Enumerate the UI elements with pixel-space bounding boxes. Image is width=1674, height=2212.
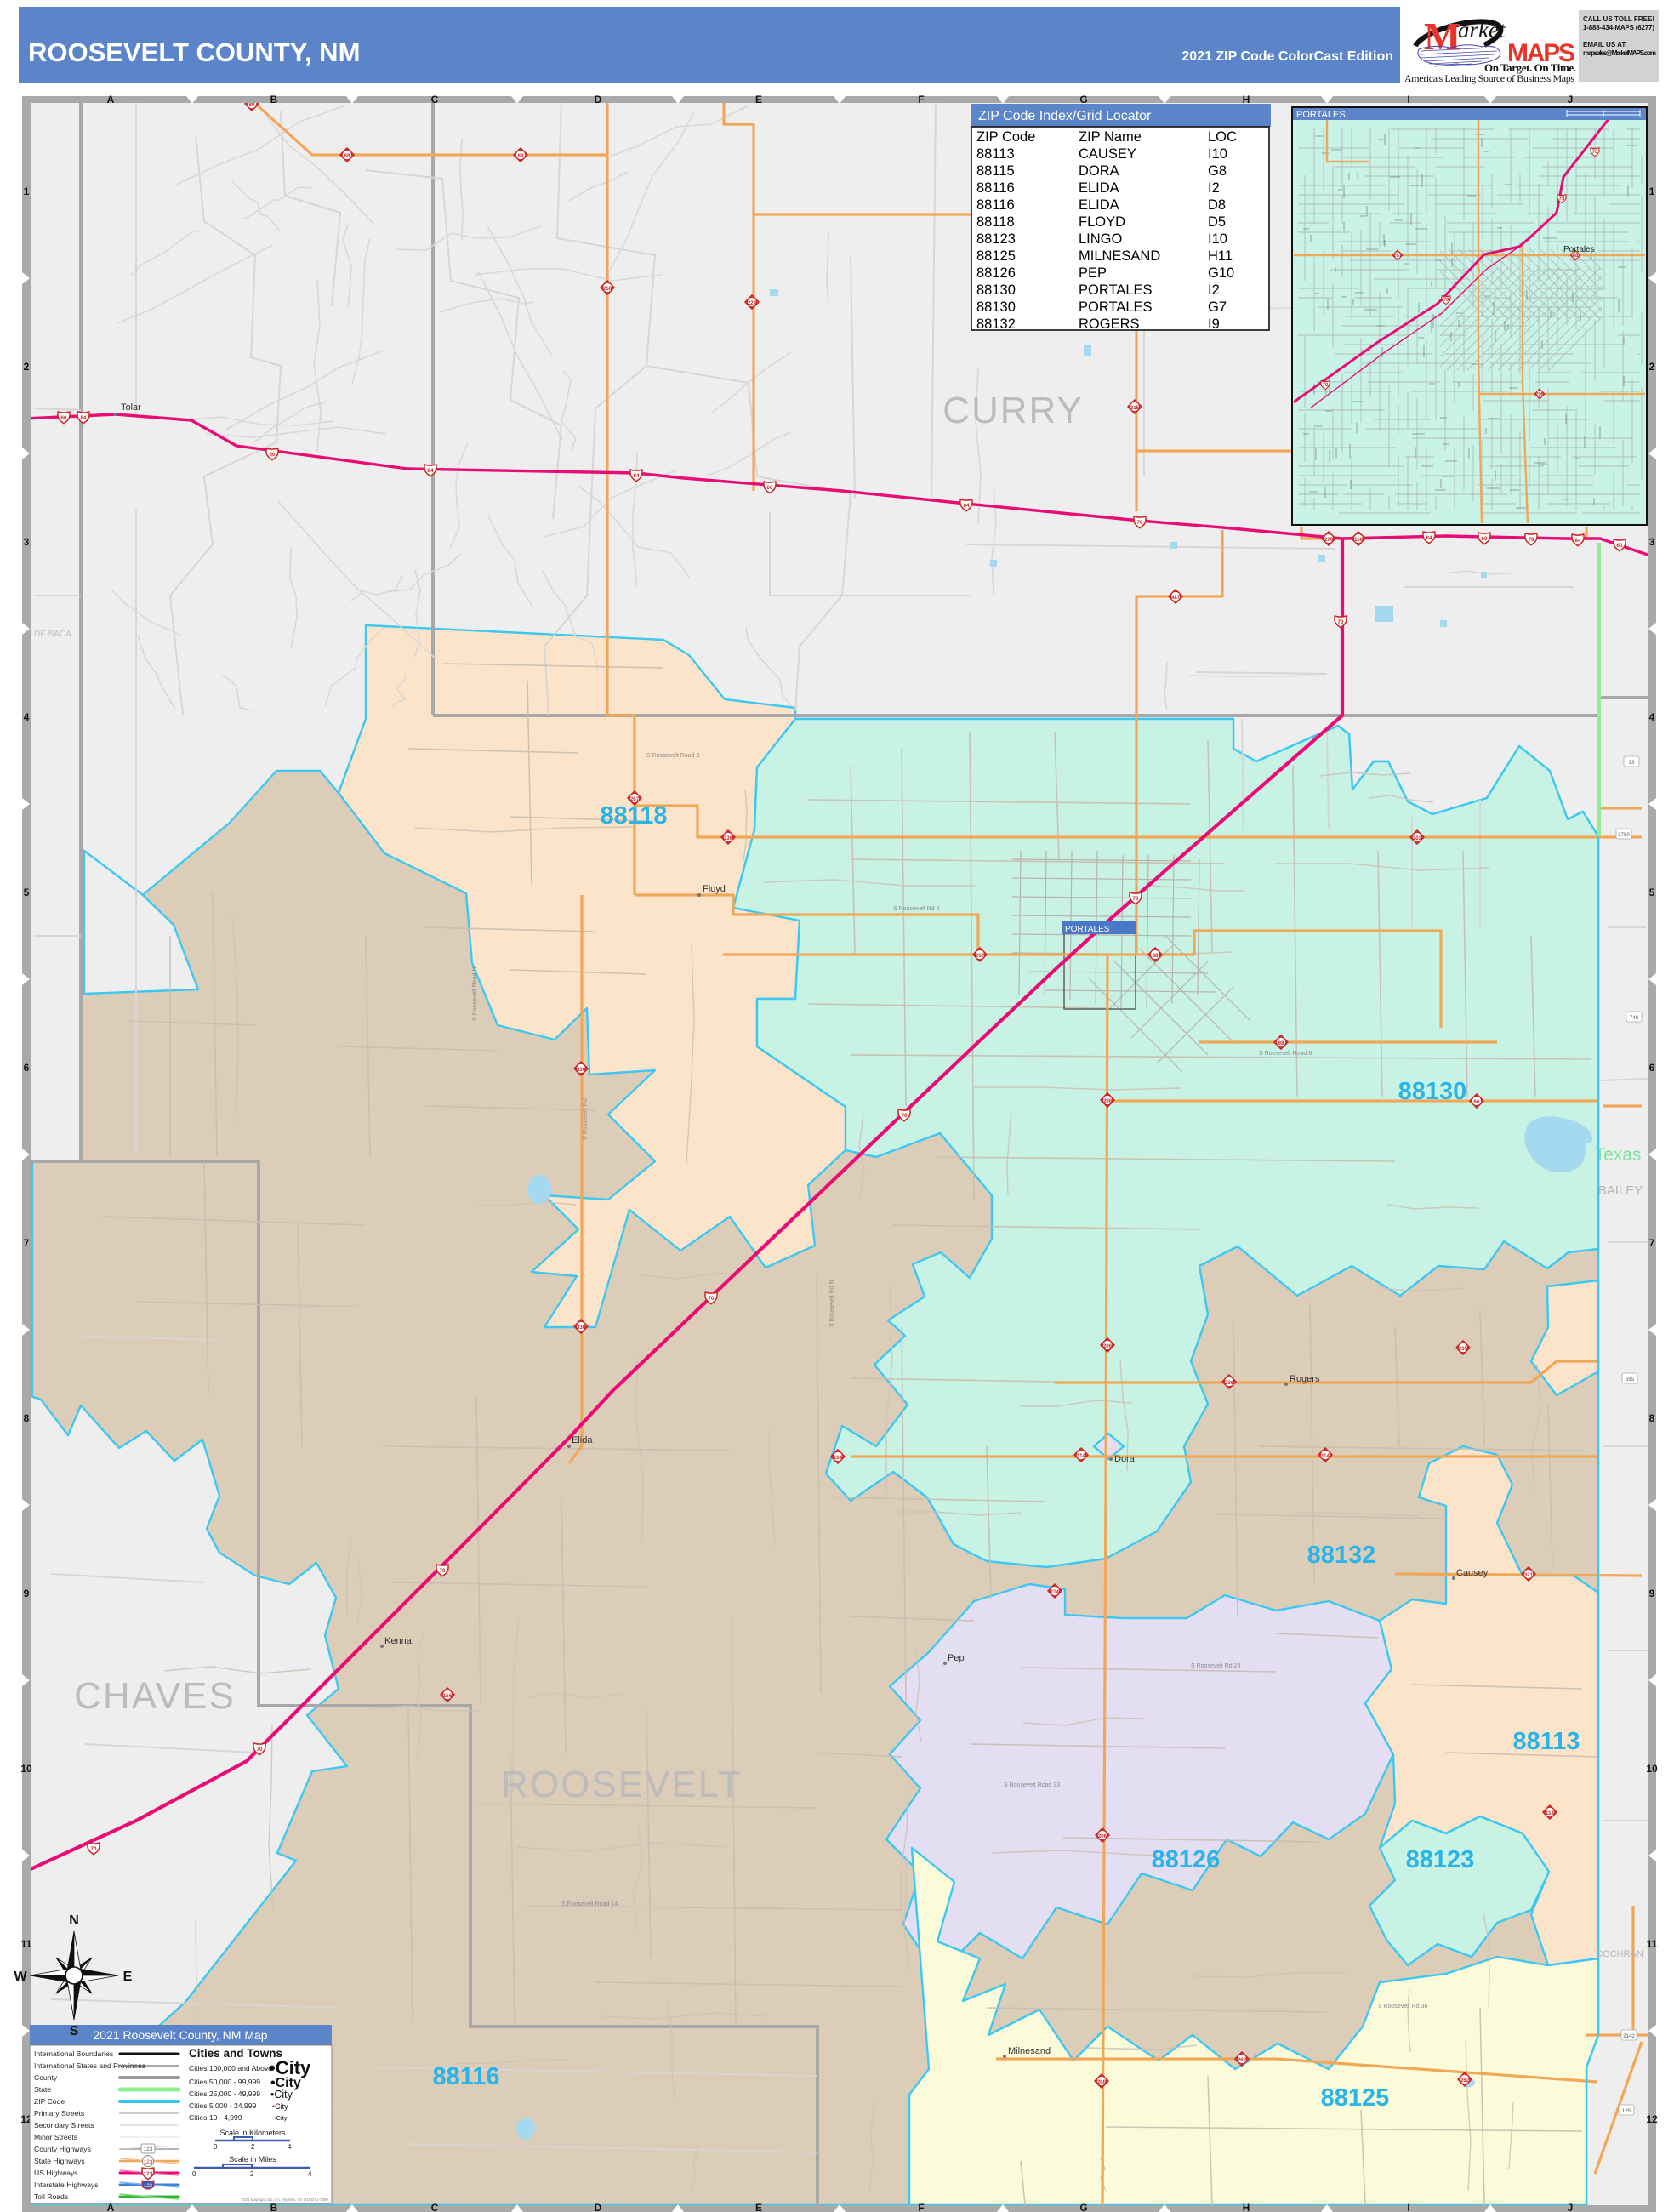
svg-text:206: 206: [1103, 1098, 1113, 1104]
svg-text:330: 330: [577, 1067, 586, 1073]
svg-text:Rogers: Rogers: [1290, 1374, 1320, 1384]
svg-text:I10: I10: [1208, 146, 1227, 162]
svg-text:ROOSEVELT COUNTY, NM: ROOSEVELT COUNTY, NM: [28, 37, 360, 67]
svg-text:89: 89: [518, 153, 524, 159]
svg-text:10: 10: [1646, 1763, 1658, 1775]
svg-text:88115: 88115: [976, 163, 1015, 179]
svg-text:70: 70: [1592, 150, 1598, 155]
svg-text:ROGERS: ROGERS: [1079, 316, 1140, 332]
svg-text:89: 89: [249, 102, 255, 108]
svg-text:E: E: [755, 94, 762, 105]
svg-text:BAILEY: BAILEY: [1598, 1183, 1643, 1198]
svg-text:M: M: [1424, 14, 1460, 58]
svg-text:G7: G7: [1208, 299, 1227, 315]
svg-text:J: J: [1568, 2202, 1574, 2212]
svg-text:ROOSEVELT: ROOSEVELT: [501, 1764, 743, 1805]
svg-text:DORA: DORA: [1079, 163, 1119, 179]
svg-text:J: J: [1568, 94, 1574, 105]
svg-text:America's Leading Source of B: America's Leading Source of Business Map…: [1404, 72, 1574, 84]
svg-text:114: 114: [1546, 1810, 1555, 1816]
svg-text:F: F: [918, 2202, 924, 2212]
svg-text:66: 66: [1474, 1099, 1480, 1105]
svg-text:114: 114: [1077, 1453, 1086, 1459]
svg-text:S Roosevelt Road 3: S Roosevelt Road 3: [646, 753, 699, 759]
svg-text:H: H: [1243, 94, 1250, 105]
svg-text:EMAIL US AT:: EMAIL US AT:: [1583, 41, 1627, 48]
svg-text:International Boundaries: International Boundaries: [34, 2050, 113, 2058]
svg-text:US Highways: US Highways: [34, 2169, 78, 2177]
svg-text:321: 321: [1524, 1572, 1534, 1578]
svg-text:A: A: [107, 94, 115, 105]
svg-text:Scale in Miles: Scale in Miles: [229, 2155, 276, 2164]
svg-text:2021 ZIP Code ColorCast Editio: 2021 ZIP Code ColorCast Edition: [1181, 49, 1393, 64]
svg-text:PORTALES: PORTALES: [1079, 282, 1153, 298]
svg-text:F: F: [918, 94, 924, 105]
svg-text:CURRY: CURRY: [942, 390, 1084, 431]
svg-text:N: N: [69, 1913, 79, 1928]
svg-text:88123: 88123: [1406, 1846, 1475, 1873]
svg-text:S Roosevelt Road N: S Roosevelt Road N: [472, 967, 478, 1021]
svg-text:206: 206: [1103, 1343, 1113, 1349]
svg-text:ELIDA: ELIDA: [1079, 180, 1119, 196]
svg-text:88: 88: [1153, 953, 1159, 959]
svg-text:I2: I2: [1208, 282, 1220, 298]
svg-text:Cities 100,000 and Above: Cities 100,000 and Above: [189, 2064, 272, 2072]
svg-text:8: 8: [24, 1412, 30, 1424]
svg-text:8: 8: [1649, 1412, 1655, 1424]
svg-text:Cities 25,000 - 49,999: Cities 25,000 - 49,999: [189, 2089, 260, 2098]
svg-text:2: 2: [24, 361, 30, 373]
svg-text:235: 235: [1459, 1346, 1468, 1352]
svg-text:88130: 88130: [1398, 1078, 1467, 1105]
svg-text:1-888-434-MAPS (6277): 1-888-434-MAPS (6277): [1583, 24, 1654, 31]
svg-text:PEP: PEP: [1079, 265, 1107, 281]
svg-text:2: 2: [251, 2143, 255, 2151]
svg-text:Texas: Texas: [1595, 1145, 1642, 1165]
svg-text:206: 206: [1098, 1833, 1107, 1839]
svg-text:6: 6: [1649, 1062, 1655, 1074]
svg-text:ELIDA: ELIDA: [1079, 197, 1119, 213]
svg-text:State Highways: State Highways: [34, 2157, 85, 2165]
svg-text:268: 268: [603, 286, 612, 292]
svg-text:84: 84: [964, 503, 970, 509]
svg-text:33: 33: [1629, 760, 1635, 766]
svg-text:84: 84: [1426, 535, 1432, 541]
svg-text:4: 4: [308, 2170, 312, 2178]
svg-text:D8: D8: [1208, 197, 1226, 213]
svg-text:75: 75: [1559, 197, 1565, 202]
svg-text:2142: 2142: [1623, 2033, 1635, 2039]
svg-text:70: 70: [440, 1568, 446, 1574]
svg-text:Elida: Elida: [572, 1435, 593, 1445]
svg-text:156: 156: [443, 1693, 453, 1699]
svg-text:W: W: [14, 1970, 27, 1984]
svg-text:I2: I2: [1208, 180, 1220, 196]
svg-text:C: C: [431, 94, 439, 105]
svg-text:S Roosevelt Road 14: S Roosevelt Road 14: [561, 1901, 618, 1907]
svg-text:County: County: [34, 2073, 58, 2082]
svg-text:5: 5: [24, 887, 30, 898]
svg-text:4: 4: [1649, 711, 1655, 723]
svg-text:S Roosevelt Rd 2: S Roosevelt Rd 2: [893, 906, 940, 912]
svg-text:Causey: Causey: [1456, 1568, 1489, 1578]
svg-text:County Highways: County Highways: [34, 2145, 91, 2153]
svg-text:MILNESAND: MILNESAND: [1079, 248, 1160, 264]
svg-text:270: 270: [1324, 537, 1334, 543]
svg-text:I: I: [1407, 2202, 1409, 2212]
svg-text:H11: H11: [1208, 248, 1233, 264]
svg-text:PORTALES: PORTALES: [1296, 110, 1346, 120]
svg-text:224: 224: [748, 300, 757, 306]
svg-text:88118: 88118: [600, 802, 667, 829]
svg-text:262: 262: [1460, 2078, 1470, 2084]
svg-text:70: 70: [1338, 619, 1344, 625]
svg-text:4: 4: [24, 711, 30, 723]
svg-text:H: H: [1243, 2202, 1250, 2212]
svg-text:114: 114: [1321, 1453, 1330, 1459]
svg-text:7: 7: [24, 1237, 30, 1249]
svg-text:70: 70: [257, 1747, 263, 1753]
svg-text:236: 236: [1225, 1380, 1234, 1386]
svg-text:9: 9: [24, 1588, 30, 1599]
svg-text:88: 88: [1278, 1040, 1284, 1046]
svg-text:6: 6: [24, 1062, 30, 1074]
svg-text:ZIP Code: ZIP Code: [34, 2097, 65, 2106]
svg-text:88: 88: [344, 153, 350, 159]
svg-text:11: 11: [21, 1938, 32, 1950]
svg-text:88126: 88126: [976, 265, 1016, 281]
svg-text:Interstate Highways: Interstate Highways: [34, 2181, 98, 2189]
svg-text:236: 236: [724, 835, 733, 841]
svg-text:88123: 88123: [976, 231, 1016, 247]
svg-text:202: 202: [1413, 835, 1422, 841]
svg-text:330: 330: [577, 1325, 586, 1331]
svg-text:2: 2: [250, 2170, 254, 2178]
svg-text:79: 79: [1529, 537, 1534, 543]
svg-text:G8: G8: [1208, 163, 1227, 179]
svg-text:Dora: Dora: [1114, 1454, 1136, 1464]
svg-text:595: 595: [1626, 1377, 1635, 1382]
svg-text:S Roosevelt Rd 36: S Roosevelt Rd 36: [1378, 2004, 1427, 2010]
svg-text:3: 3: [1649, 536, 1655, 548]
svg-text:CHAVES: CHAVES: [74, 1675, 236, 1717]
svg-text:Cities 50,000 - 99,999: Cities 50,000 - 99,999: [189, 2078, 260, 2086]
svg-text:0: 0: [214, 2143, 218, 2151]
svg-text:I9: I9: [1208, 316, 1220, 332]
svg-text:88113: 88113: [976, 146, 1015, 162]
svg-text:12: 12: [1646, 2113, 1658, 2125]
svg-text:123: 123: [144, 2171, 153, 2177]
svg-text:208: 208: [1097, 2079, 1107, 2085]
svg-text:Milnesand: Milnesand: [1008, 2046, 1051, 2056]
svg-text:Floyd: Floyd: [703, 884, 726, 894]
svg-text:S Roosevelt Rd N: S Roosevelt Rd N: [829, 1280, 835, 1327]
svg-text:123: 123: [144, 2159, 153, 2165]
svg-text:G10: G10: [1208, 265, 1234, 281]
svg-text:88116: 88116: [976, 180, 1015, 196]
svg-text:60: 60: [767, 485, 773, 491]
svg-text:COCHRAN: COCHRAN: [1596, 1949, 1643, 1959]
svg-text:11: 11: [1647, 1938, 1658, 1950]
svg-text:CAUSEY: CAUSEY: [1079, 146, 1136, 162]
svg-text:G: G: [1079, 2202, 1087, 2212]
svg-text:123: 123: [144, 2146, 153, 2152]
svg-text:LOC: LOC: [1208, 129, 1237, 145]
svg-text:E: E: [123, 1970, 133, 1984]
svg-text:9: 9: [1649, 1588, 1655, 1599]
svg-text:S Roosevelt Road 6: S Roosevelt Road 6: [1259, 1051, 1312, 1057]
svg-text:1780: 1780: [1618, 832, 1630, 838]
svg-text:60: 60: [1482, 536, 1488, 542]
svg-text:I: I: [1407, 94, 1409, 105]
svg-text:mapsales@MarketMAPS.com: mapsales@MarketMAPS.com: [1583, 49, 1656, 57]
svg-text:G: G: [1079, 94, 1087, 105]
svg-text:84: 84: [634, 473, 640, 479]
svg-text:B: B: [270, 94, 278, 105]
svg-text:5: 5: [1649, 887, 1655, 898]
svg-text:0: 0: [192, 2170, 196, 2178]
svg-text:70: 70: [1323, 383, 1329, 388]
svg-text:Portales: Portales: [1563, 245, 1595, 254]
svg-text:125: 125: [1622, 2108, 1631, 2114]
svg-text:10: 10: [20, 1763, 32, 1775]
svg-text:Tolar: Tolar: [121, 402, 141, 413]
svg-text:267: 267: [630, 796, 640, 802]
svg-text:746: 746: [1630, 1015, 1639, 1021]
svg-text:Secondary Streets: Secondary Streets: [34, 2121, 94, 2129]
svg-text:2: 2: [1649, 361, 1655, 373]
svg-text:PORTALES: PORTALES: [1079, 299, 1153, 315]
svg-text:Minor Streets: Minor Streets: [34, 2133, 77, 2141]
svg-text:88125: 88125: [1321, 2084, 1390, 2112]
svg-text:Scale in Kilometers: Scale in Kilometers: [219, 2129, 286, 2137]
svg-text:S Roosevelt Rd 28: S Roosevelt Rd 28: [1191, 1663, 1240, 1669]
svg-text:114: 114: [1051, 1589, 1060, 1595]
svg-text:E: E: [755, 2202, 762, 2212]
svg-text:LINGO: LINGO: [1079, 231, 1123, 247]
svg-text:88113: 88113: [1512, 1728, 1580, 1755]
svg-text:60: 60: [270, 452, 276, 458]
svg-text:267: 267: [1393, 254, 1403, 259]
svg-text:60: 60: [61, 415, 67, 421]
svg-text:3: 3: [24, 536, 30, 548]
svg-text:Cities 10 - 4,999: Cities 10 - 4,999: [189, 2113, 242, 2122]
svg-text:S: S: [70, 2024, 79, 2038]
svg-text:CALL US TOLL FREE!: CALL US TOLL FREE!: [1583, 15, 1654, 23]
svg-text:Cities 5,000 - 24,999: Cities 5,000 - 24,999: [189, 2101, 257, 2110]
svg-text:84: 84: [81, 415, 87, 421]
svg-text:262: 262: [1238, 2057, 1247, 2063]
svg-text:1: 1: [1649, 185, 1655, 197]
svg-text:315: 315: [1130, 405, 1140, 411]
svg-text:114: 114: [834, 1455, 843, 1461]
svg-text:1: 1: [24, 185, 30, 197]
svg-text:267: 267: [976, 953, 985, 959]
svg-text:118: 118: [1354, 537, 1364, 543]
svg-text:70: 70: [1443, 298, 1449, 303]
svg-text:D: D: [595, 94, 602, 105]
svg-text:70: 70: [1137, 520, 1143, 526]
svg-text:123: 123: [144, 2184, 153, 2189]
svg-text:88132: 88132: [976, 316, 1016, 332]
svg-text:88130: 88130: [976, 282, 1016, 298]
svg-text:Pep: Pep: [948, 1653, 965, 1663]
svg-text:FLOYD: FLOYD: [1079, 214, 1125, 230]
svg-text:arket: arket: [1458, 17, 1506, 43]
svg-text:88118: 88118: [976, 214, 1015, 230]
svg-text:2021 MapsgaCorp, Inc. Allestes: 2021 MapsgaCorp, Inc. Allestes, TX (810)…: [242, 2198, 329, 2202]
svg-text:2021 Roosevelt County, NM Map: 2021 Roosevelt County, NM Map: [93, 2028, 267, 2042]
svg-text:206: 206: [1535, 392, 1545, 397]
svg-text:D: D: [595, 2202, 602, 2212]
svg-text:487: 487: [1171, 595, 1181, 601]
svg-text:88130: 88130: [976, 299, 1016, 315]
svg-text:State: State: [34, 2085, 51, 2094]
svg-text:70: 70: [709, 1296, 715, 1302]
svg-text:88132: 88132: [1307, 1542, 1376, 1569]
svg-text:ZIP Code: ZIP Code: [976, 129, 1035, 145]
svg-text:•City: •City: [270, 2089, 293, 2101]
svg-text:88125: 88125: [976, 248, 1016, 264]
svg-text:84: 84: [1575, 538, 1581, 544]
svg-text:DE BACA: DE BACA: [34, 630, 71, 639]
svg-text:70: 70: [902, 1113, 908, 1119]
svg-text:4: 4: [288, 2143, 292, 2151]
svg-text:Primary Streets: Primary Streets: [34, 2109, 84, 2118]
svg-text:S Roosevelt Road 33: S Roosevelt Road 33: [1004, 1782, 1060, 1788]
svg-text:70: 70: [1133, 896, 1139, 902]
svg-text:70: 70: [91, 1846, 97, 1852]
svg-text:88116: 88116: [976, 197, 1015, 213]
svg-text:•City: •City: [274, 2114, 288, 2122]
svg-text:7: 7: [1649, 1237, 1655, 1249]
svg-text:Kenna: Kenna: [384, 1636, 413, 1646]
svg-text:•City: •City: [272, 2102, 288, 2111]
svg-text:88126: 88126: [1152, 1846, 1221, 1873]
svg-text:88116: 88116: [432, 2063, 499, 2090]
svg-text:C: C: [431, 2202, 439, 2212]
svg-text:84: 84: [428, 468, 434, 474]
svg-text:S Roosevelt Rd: S Roosevelt Rd: [583, 1098, 589, 1140]
svg-text:ZIP Name: ZIP Name: [1079, 129, 1142, 145]
svg-text:I10: I10: [1208, 231, 1227, 247]
svg-text:ZIP Code Index/Grid Locator: ZIP Code Index/Grid Locator: [978, 109, 1152, 123]
svg-text:PORTALES: PORTALES: [1065, 925, 1110, 934]
svg-text:60: 60: [1617, 543, 1623, 549]
svg-text:Toll Roads: Toll Roads: [34, 2192, 68, 2201]
svg-text:D5: D5: [1208, 214, 1226, 230]
